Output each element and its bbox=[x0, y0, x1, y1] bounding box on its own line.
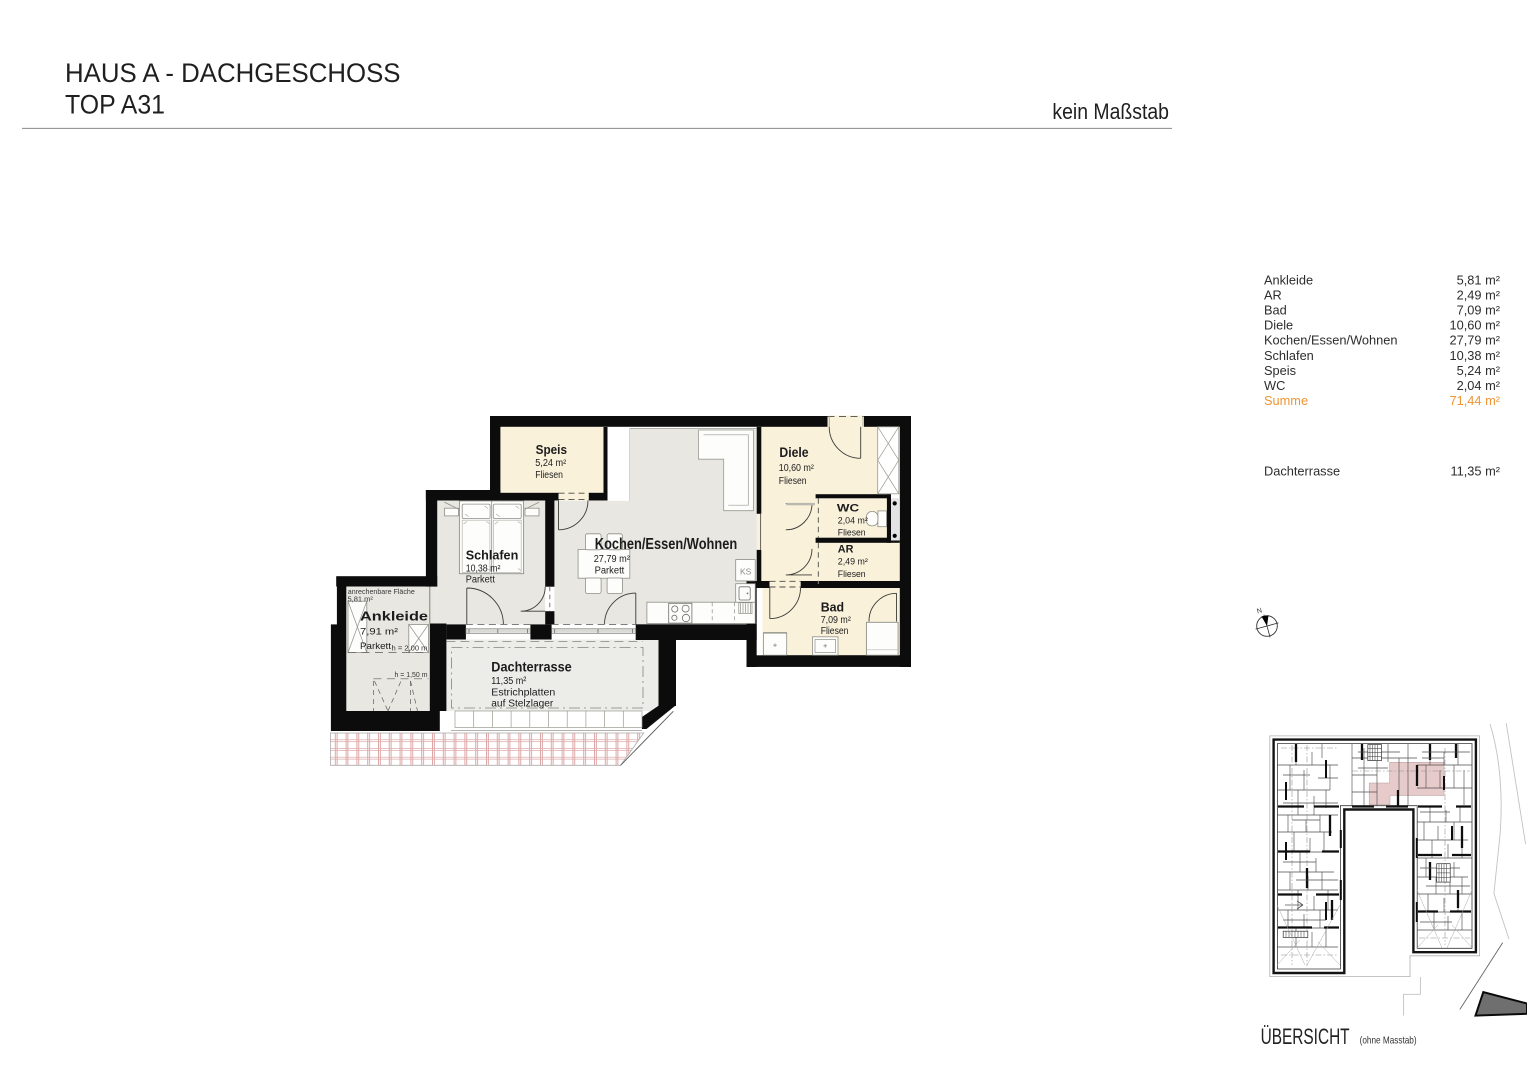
svg-text:KS: KS bbox=[740, 567, 752, 577]
svg-text:Kochen/Essen/Wohnen: Kochen/Essen/Wohnen bbox=[1264, 333, 1398, 348]
svg-text:5,81 m²: 5,81 m² bbox=[1457, 272, 1501, 287]
svg-text:h = 2,00 m: h = 2,00 m bbox=[392, 643, 428, 652]
svg-text:2,04 m²: 2,04 m² bbox=[1457, 378, 1501, 393]
svg-text:Speis: Speis bbox=[536, 442, 567, 457]
svg-text:Kochen/Essen/Wohnen: Kochen/Essen/Wohnen bbox=[595, 536, 737, 553]
svg-text:HAUS A - DACHGESCHOSS: HAUS A - DACHGESCHOSS bbox=[65, 58, 401, 88]
svg-text:Schlafen: Schlafen bbox=[466, 548, 519, 563]
svg-text:Bad: Bad bbox=[1264, 303, 1287, 318]
svg-text:10,38 m²: 10,38 m² bbox=[1449, 348, 1500, 363]
svg-text:Diele: Diele bbox=[1264, 318, 1293, 333]
svg-text:h = 1,50 m: h = 1,50 m bbox=[395, 670, 428, 679]
svg-text:Fliesen: Fliesen bbox=[838, 527, 866, 537]
svg-text:10,38 m²: 10,38 m² bbox=[466, 564, 501, 575]
svg-text:2,49 m²: 2,49 m² bbox=[838, 557, 868, 567]
svg-text:10,60 m²: 10,60 m² bbox=[779, 463, 815, 474]
svg-text:Parkett: Parkett bbox=[595, 566, 625, 577]
svg-text:Diele: Diele bbox=[779, 445, 809, 460]
svg-text:7,91 m²: 7,91 m² bbox=[360, 627, 398, 637]
svg-text:Fliesen: Fliesen bbox=[821, 626, 849, 637]
svg-text:27,79 m²: 27,79 m² bbox=[594, 554, 631, 565]
svg-text:TOP A31: TOP A31 bbox=[65, 90, 165, 120]
svg-text:10,60 m²: 10,60 m² bbox=[1449, 318, 1500, 333]
svg-text:5,81 m²: 5,81 m² bbox=[348, 595, 374, 604]
svg-text:Ankleide: Ankleide bbox=[1264, 272, 1313, 287]
svg-text:Parkett: Parkett bbox=[360, 641, 391, 651]
svg-text:ÜBERSICHT: ÜBERSICHT bbox=[1261, 1024, 1350, 1049]
svg-text:Fliesen: Fliesen bbox=[838, 569, 866, 579]
svg-text:Fliesen: Fliesen bbox=[535, 470, 563, 481]
svg-text:kein Maßstab: kein Maßstab bbox=[1052, 99, 1169, 124]
svg-text:auf Stelzlager: auf Stelzlager bbox=[491, 699, 554, 710]
svg-text:Estrichplatten: Estrichplatten bbox=[491, 688, 555, 699]
svg-text:11,35 m²: 11,35 m² bbox=[1450, 464, 1500, 479]
svg-text:Fliesen: Fliesen bbox=[779, 476, 807, 487]
svg-text:71,44 m²: 71,44 m² bbox=[1449, 393, 1500, 408]
svg-text:(ohne Masstab): (ohne Masstab) bbox=[1360, 1034, 1417, 1046]
svg-text:Schlafen: Schlafen bbox=[1264, 348, 1314, 363]
svg-text:AR: AR bbox=[1264, 287, 1282, 302]
svg-text:Parkett: Parkett bbox=[466, 575, 495, 586]
svg-text:Bad: Bad bbox=[821, 600, 844, 615]
svg-text:Ankleide: Ankleide bbox=[360, 609, 428, 624]
svg-text:WC: WC bbox=[837, 502, 860, 514]
svg-text:Dachterrasse: Dachterrasse bbox=[1264, 464, 1340, 479]
svg-text:Speis: Speis bbox=[1264, 363, 1296, 378]
svg-text:7,09 m²: 7,09 m² bbox=[821, 615, 852, 626]
svg-text:2,04 m²: 2,04 m² bbox=[838, 516, 868, 526]
svg-text:5,24 m²: 5,24 m² bbox=[535, 458, 567, 469]
svg-text:5,24 m²: 5,24 m² bbox=[1457, 363, 1501, 378]
svg-text:Dachterrasse: Dachterrasse bbox=[491, 659, 572, 674]
svg-text:2,49 m²: 2,49 m² bbox=[1457, 287, 1501, 302]
svg-text:27,79 m²: 27,79 m² bbox=[1449, 333, 1500, 348]
svg-text:7,09 m²: 7,09 m² bbox=[1457, 303, 1501, 318]
svg-text:11,35 m²: 11,35 m² bbox=[491, 676, 527, 687]
svg-text:WC: WC bbox=[1264, 378, 1285, 393]
svg-text:AR: AR bbox=[838, 543, 854, 555]
svg-text:Summe: Summe bbox=[1264, 393, 1308, 408]
